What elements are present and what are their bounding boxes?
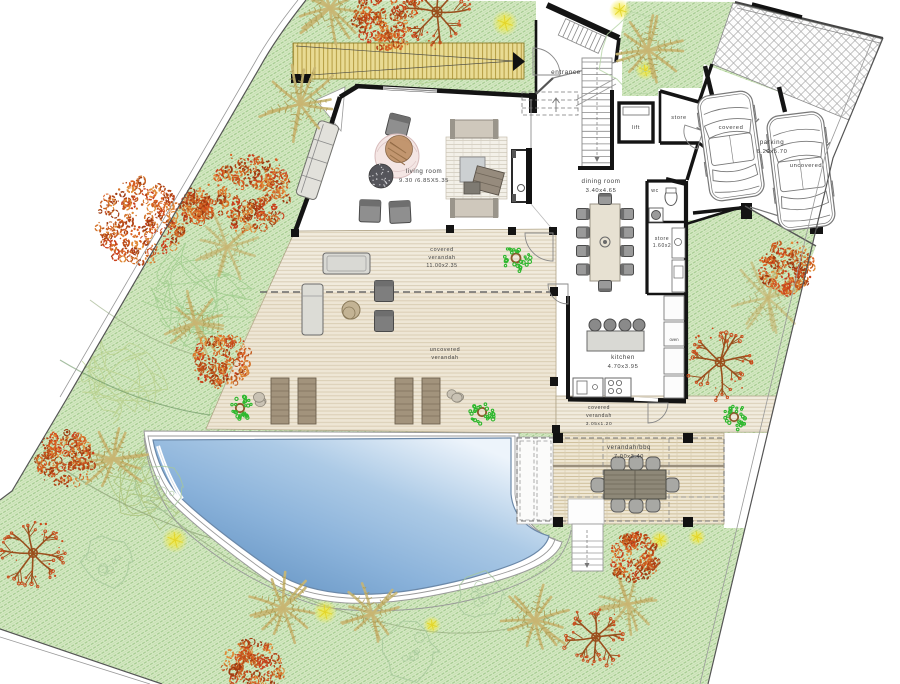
svg-text:6.20x5.70: 6.20x5.70 — [757, 149, 788, 155]
svg-text:4.70x3.95: 4.70x3.95 — [608, 364, 639, 370]
svg-text:covered: covered — [719, 125, 744, 131]
svg-text:covered: covered — [588, 405, 610, 411]
svg-text:lift: lift — [632, 125, 640, 131]
svg-text:uncovered: uncovered — [430, 347, 461, 353]
svg-text:parking: parking — [760, 139, 785, 146]
svg-text:living room: living room — [406, 168, 443, 175]
svg-text:store: store — [655, 236, 670, 242]
svg-text:store: store — [671, 115, 686, 121]
svg-text:uncovered: uncovered — [790, 163, 822, 169]
svg-text:verandah: verandah — [586, 413, 612, 419]
svg-text:covered: covered — [430, 247, 453, 253]
svg-text:verandah: verandah — [428, 255, 455, 261]
svg-text:verandah: verandah — [431, 355, 458, 361]
svg-text:7.00x3.40: 7.00x3.40 — [614, 454, 644, 460]
svg-text:dining room: dining room — [582, 178, 621, 185]
svg-text:oven: oven — [669, 337, 679, 342]
svg-text:9.30 /6.85X5.35: 9.30 /6.85X5.35 — [399, 178, 449, 184]
svg-text:1.60x2: 1.60x2 — [653, 243, 672, 249]
svg-text:verandah/bbq: verandah/bbq — [607, 445, 651, 451]
svg-text:kitchen: kitchen — [611, 354, 635, 361]
svg-text:3.40x4.65: 3.40x4.65 — [586, 188, 617, 194]
svg-text:3.05x1.20: 3.05x1.20 — [586, 421, 612, 427]
svg-text:11.00x2.35: 11.00x2.35 — [426, 263, 457, 269]
svg-text:entrance: entrance — [551, 69, 581, 76]
svg-text:wc: wc — [651, 188, 659, 194]
